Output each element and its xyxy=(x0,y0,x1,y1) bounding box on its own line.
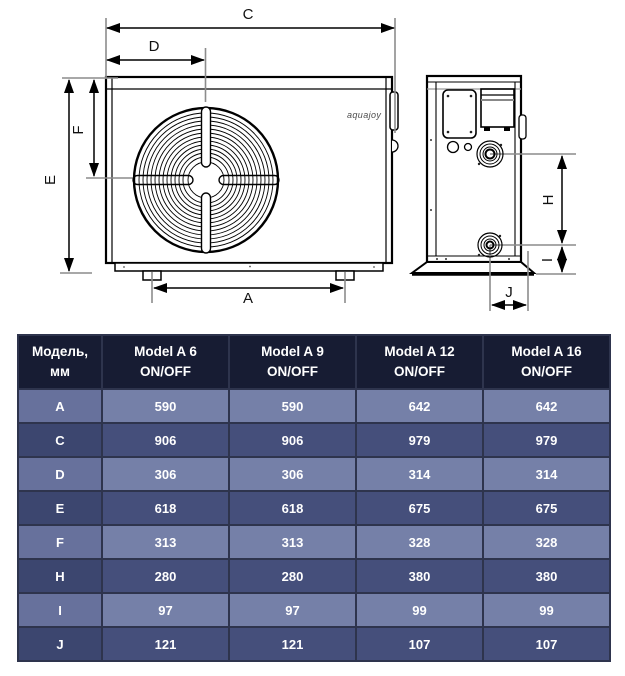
dim-label-a: A xyxy=(243,290,253,307)
table-cell: 642 xyxy=(483,389,610,423)
row-label: E xyxy=(18,491,102,525)
fan-spoke-top xyxy=(202,107,211,167)
table-cell: 979 xyxy=(483,423,610,457)
dim-label-e: E xyxy=(42,175,59,185)
col-header-a12: Model A 12 ON/OFF xyxy=(356,335,483,389)
dim-label-i: I xyxy=(539,258,556,262)
col-header-a6: Model A 6 ON/OFF xyxy=(102,335,229,389)
table-cell: 280 xyxy=(102,559,229,593)
table-cell: 675 xyxy=(356,491,483,525)
col-header-a9: Model A 9 ON/OFF xyxy=(229,335,356,389)
dimensions-table: Модель, мм Model A 6 ON/OFF Model A 9 ON… xyxy=(17,334,611,662)
row-label: J xyxy=(18,627,102,661)
dim-label-f: F xyxy=(70,125,87,134)
table-cell: 314 xyxy=(356,457,483,491)
table-row: J 121 121 107 107 xyxy=(18,627,610,661)
table-row: D 306 306 314 314 xyxy=(18,457,610,491)
row-label: D xyxy=(18,457,102,491)
brand-logo: aquajoy xyxy=(347,110,381,120)
row-label: C xyxy=(18,423,102,457)
table-cell: 642 xyxy=(356,389,483,423)
table-cell: 313 xyxy=(102,525,229,559)
table-cell: 306 xyxy=(102,457,229,491)
fan-spoke-bottom xyxy=(202,193,211,253)
dimension-drawing: aquajoy C D E F A xyxy=(0,0,625,333)
pipe-bump xyxy=(392,140,398,152)
table-cell: 121 xyxy=(229,627,356,661)
table-cell: 97 xyxy=(102,593,229,627)
heat-pump-diagram: aquajoy C D E F A xyxy=(0,0,625,333)
table-cell: 380 xyxy=(356,559,483,593)
table-cell: 107 xyxy=(483,627,610,661)
front-body xyxy=(106,77,392,263)
table-cell: 906 xyxy=(229,423,356,457)
table-row: E 618 618 675 675 xyxy=(18,491,610,525)
table-cell: 590 xyxy=(102,389,229,423)
row-label: I xyxy=(18,593,102,627)
row-label: A xyxy=(18,389,102,423)
front-base-strip xyxy=(115,263,383,271)
dim-label-c: C xyxy=(243,6,254,23)
table-cell: 280 xyxy=(229,559,356,593)
table-row: H 280 280 380 380 xyxy=(18,559,610,593)
table-cell: 675 xyxy=(483,491,610,525)
table-cell: 590 xyxy=(229,389,356,423)
table-row: C 906 906 979 979 xyxy=(18,423,610,457)
table-cell: 618 xyxy=(229,491,356,525)
table-cell: 107 xyxy=(356,627,483,661)
front-view xyxy=(106,77,398,280)
table-row: A 590 590 642 642 xyxy=(18,389,610,423)
table-cell: 618 xyxy=(102,491,229,525)
table-cell: 121 xyxy=(102,627,229,661)
table-cell: 306 xyxy=(229,457,356,491)
table-cell: 314 xyxy=(483,457,610,491)
table-cell: 313 xyxy=(229,525,356,559)
table-header-row: Модель, мм Model A 6 ON/OFF Model A 9 ON… xyxy=(18,335,610,389)
dim-label-h: H xyxy=(540,195,557,206)
col-header-a16: Model A 16 ON/OFF xyxy=(483,335,610,389)
table-cell: 328 xyxy=(356,525,483,559)
table-cell: 906 xyxy=(102,423,229,457)
table-row: I 97 97 99 99 xyxy=(18,593,610,627)
row-label: F xyxy=(18,525,102,559)
table-row: F 313 313 328 328 xyxy=(18,525,610,559)
page: aquajoy C D E F A xyxy=(0,0,625,676)
table-cell: 99 xyxy=(356,593,483,627)
table-cell: 328 xyxy=(483,525,610,559)
dim-label-d: D xyxy=(149,38,160,55)
table-cell: 97 xyxy=(229,593,356,627)
dim-label-j: J xyxy=(505,284,513,301)
table-cell: 380 xyxy=(483,559,610,593)
col-header-model: Модель, мм xyxy=(18,335,102,389)
row-label: H xyxy=(18,559,102,593)
side-body xyxy=(427,76,521,262)
side-handle xyxy=(390,92,398,130)
table-cell: 99 xyxy=(483,593,610,627)
table-cell: 979 xyxy=(356,423,483,457)
side-base xyxy=(412,262,534,273)
